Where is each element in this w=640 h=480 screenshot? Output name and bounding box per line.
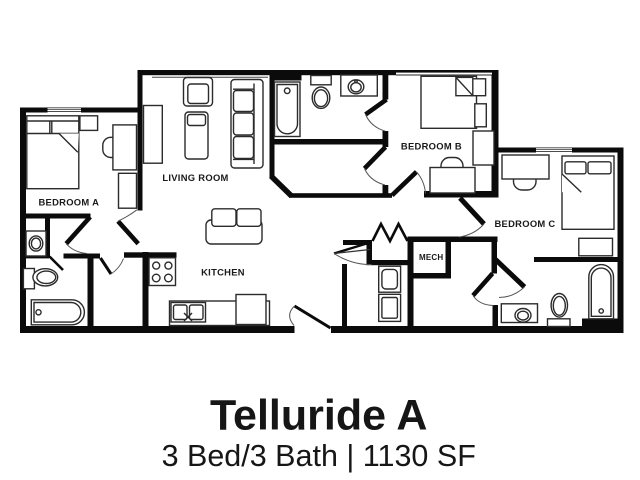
svg-text:BEDROOM A: BEDROOM A: [38, 197, 99, 208]
svg-text:BEDROOM B: BEDROOM B: [401, 140, 462, 151]
svg-text:Telluride A: Telluride A: [210, 392, 427, 440]
svg-text:MECH: MECH: [419, 253, 443, 262]
svg-text:3 Bed/3 Bath | 1130 SF: 3 Bed/3 Bath | 1130 SF: [162, 439, 476, 473]
svg-text:KITCHEN: KITCHEN: [201, 267, 245, 278]
svg-text:LIVING ROOM: LIVING ROOM: [162, 172, 228, 183]
svg-text:BEDROOM C: BEDROOM C: [494, 218, 555, 229]
